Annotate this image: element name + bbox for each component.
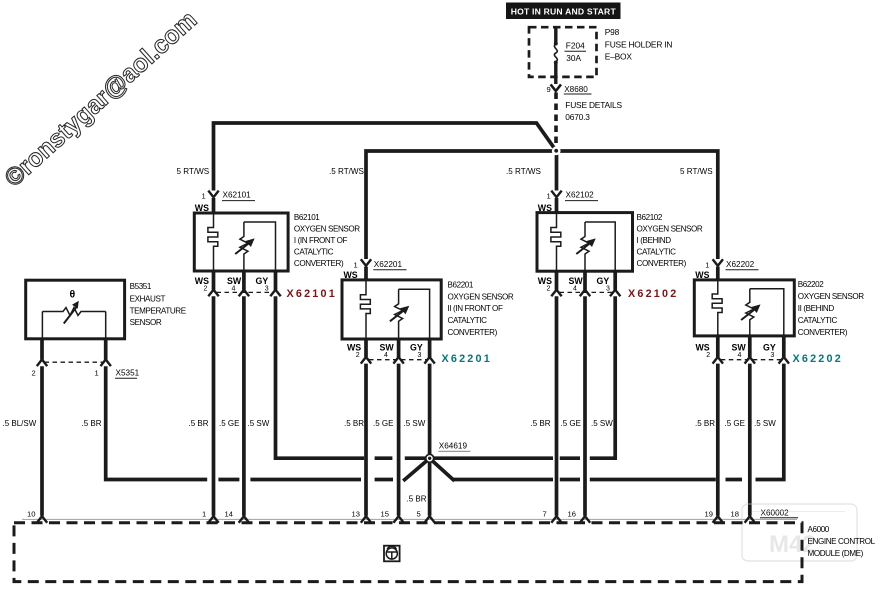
svg-text:II (BEHIND: II (BEHIND	[798, 304, 835, 313]
svg-text:I (IN FRONT OF: I (IN FRONT OF	[294, 236, 348, 245]
svg-text:3: 3	[771, 352, 775, 359]
svg-text:2: 2	[547, 286, 551, 293]
svg-text:30A: 30A	[566, 53, 581, 63]
svg-text:1: 1	[202, 191, 206, 200]
svg-text:X62201: X62201	[374, 260, 403, 269]
svg-text:GY: GY	[256, 276, 269, 286]
svg-text:B62201: B62201	[448, 281, 474, 290]
svg-text:EXHAUST: EXHAUST	[130, 294, 166, 303]
svg-text:F204: F204	[566, 41, 585, 51]
svg-text:E–BOX: E–BOX	[605, 51, 633, 61]
svg-text:4: 4	[573, 286, 577, 293]
svg-text:19: 19	[705, 510, 713, 519]
svg-text:FUSE DETAILS: FUSE DETAILS	[565, 100, 622, 110]
svg-text:ENGINE CONTROL: ENGINE CONTROL	[808, 537, 876, 546]
svg-text:X5351: X5351	[116, 369, 140, 378]
svg-text:WS: WS	[696, 342, 710, 352]
svg-text:B62101: B62101	[294, 213, 320, 222]
svg-text:.5 GE: .5 GE	[373, 419, 393, 428]
svg-text:4: 4	[384, 352, 388, 359]
svg-text:3: 3	[265, 286, 269, 293]
svg-text:13: 13	[352, 510, 360, 519]
svg-text:WS: WS	[538, 276, 552, 286]
svg-text:CATALYTIC: CATALYTIC	[637, 247, 677, 256]
svg-text:1: 1	[202, 510, 206, 519]
svg-text:.5 RT/WS: .5 RT/WS	[329, 167, 365, 176]
svg-text:9: 9	[547, 85, 551, 94]
svg-text:OXYGEN SENSOR: OXYGEN SENSOR	[637, 224, 703, 233]
svg-text:OXYGEN SENSOR: OXYGEN SENSOR	[798, 292, 864, 301]
svg-text:SENSOR: SENSOR	[130, 318, 162, 327]
svg-text:X62102: X62102	[628, 288, 678, 300]
svg-text:CONVERTER): CONVERTER)	[798, 328, 848, 337]
svg-text:X62101: X62101	[223, 191, 252, 200]
svg-text:5 RT/WS: 5 RT/WS	[177, 167, 210, 176]
svg-text:CONVERTER): CONVERTER)	[294, 259, 344, 268]
svg-text:10: 10	[27, 510, 35, 519]
svg-text:4: 4	[738, 352, 742, 359]
svg-text:TEMPERATURE: TEMPERATURE	[130, 306, 187, 315]
svg-text:2: 2	[204, 286, 208, 293]
svg-text:.5 SW: .5 SW	[591, 419, 613, 428]
svg-text:GY: GY	[763, 342, 776, 352]
svg-text:CATALYTIC: CATALYTIC	[294, 247, 334, 256]
svg-text:.5 SW: .5 SW	[404, 419, 426, 428]
svg-text:OXYGEN SENSOR: OXYGEN SENSOR	[294, 224, 360, 233]
svg-text:5 RT/WS: 5 RT/WS	[680, 167, 713, 176]
svg-text:7: 7	[543, 510, 547, 519]
svg-text:HOT IN RUN AND START: HOT IN RUN AND START	[511, 6, 617, 16]
svg-text:16: 16	[568, 510, 576, 519]
svg-text:X8680: X8680	[564, 85, 588, 94]
svg-text:X62202: X62202	[793, 353, 843, 365]
svg-text:X64619: X64619	[439, 442, 468, 451]
svg-text:X62201: X62201	[442, 353, 492, 365]
svg-text:.5 BL/SW: .5 BL/SW	[3, 419, 37, 428]
svg-text:X60002: X60002	[761, 508, 790, 517]
svg-text:3: 3	[418, 352, 422, 359]
svg-text:II (IN FRONT OF: II (IN FRONT OF	[448, 304, 503, 313]
svg-text:.5 GE: .5 GE	[561, 419, 581, 428]
svg-text:1: 1	[547, 191, 551, 200]
svg-text:A6000: A6000	[808, 525, 830, 534]
svg-text:θ: θ	[70, 289, 76, 301]
svg-text:GY: GY	[597, 276, 610, 286]
svg-text:SW: SW	[380, 342, 395, 352]
svg-text:1: 1	[95, 369, 99, 378]
svg-text:SW: SW	[569, 276, 584, 286]
svg-text:.5 BR: .5 BR	[82, 419, 102, 428]
svg-text:.5 SW: .5 SW	[754, 419, 776, 428]
svg-text:SW: SW	[732, 342, 747, 352]
svg-text:GY: GY	[410, 342, 423, 352]
svg-text:2: 2	[32, 369, 36, 378]
svg-text:18: 18	[731, 510, 739, 519]
svg-text:.5 BR: .5 BR	[344, 419, 364, 428]
svg-text:.5 GE: .5 GE	[725, 419, 745, 428]
svg-text:CATALYTIC: CATALYTIC	[798, 316, 838, 325]
svg-text:I (BEHIND: I (BEHIND	[637, 236, 672, 245]
svg-text:FUSE HOLDER IN: FUSE HOLDER IN	[605, 40, 673, 50]
svg-text:CATALYTIC: CATALYTIC	[448, 316, 488, 325]
svg-text:1: 1	[705, 260, 709, 269]
svg-text:.5 GE: .5 GE	[219, 419, 239, 428]
svg-text:5: 5	[417, 510, 421, 519]
svg-text:0670.3: 0670.3	[565, 112, 590, 122]
svg-text:WS: WS	[347, 342, 361, 352]
svg-text:1: 1	[354, 260, 358, 269]
svg-text:4: 4	[232, 286, 236, 293]
svg-text:WS: WS	[195, 203, 209, 213]
svg-text:OXYGEN SENSOR: OXYGEN SENSOR	[448, 292, 514, 301]
svg-text:.5 BR: .5 BR	[407, 495, 427, 504]
svg-text:B62102: B62102	[637, 213, 663, 222]
svg-text:2: 2	[706, 352, 710, 359]
svg-text:.5 SW: .5 SW	[248, 419, 270, 428]
svg-text:CONVERTER): CONVERTER)	[637, 259, 687, 268]
svg-text:X62101: X62101	[287, 288, 337, 300]
svg-text:X62102: X62102	[566, 191, 595, 200]
svg-text:CONVERTER): CONVERTER)	[448, 328, 498, 337]
svg-text:WS: WS	[195, 276, 209, 286]
svg-text:B62202: B62202	[798, 280, 824, 289]
svg-text:SW: SW	[227, 276, 242, 286]
svg-text:3: 3	[606, 286, 610, 293]
svg-text:©ronstygar@aol.com: ©ronstygar@aol.com	[0, 6, 202, 193]
svg-text:P98: P98	[605, 27, 620, 37]
svg-text:2: 2	[356, 352, 360, 359]
svg-text:.5 BR: .5 BR	[695, 419, 715, 428]
svg-text:.5 BR: .5 BR	[531, 419, 551, 428]
svg-text:B5351: B5351	[130, 282, 152, 291]
svg-text:.5 RT/WS: .5 RT/WS	[506, 167, 542, 176]
svg-text:X62202: X62202	[726, 260, 755, 269]
svg-text:14: 14	[225, 510, 233, 519]
svg-text:15: 15	[381, 510, 389, 519]
svg-text:MODULE (DME): MODULE (DME)	[808, 549, 864, 558]
svg-text:.5 BR: .5 BR	[189, 419, 209, 428]
